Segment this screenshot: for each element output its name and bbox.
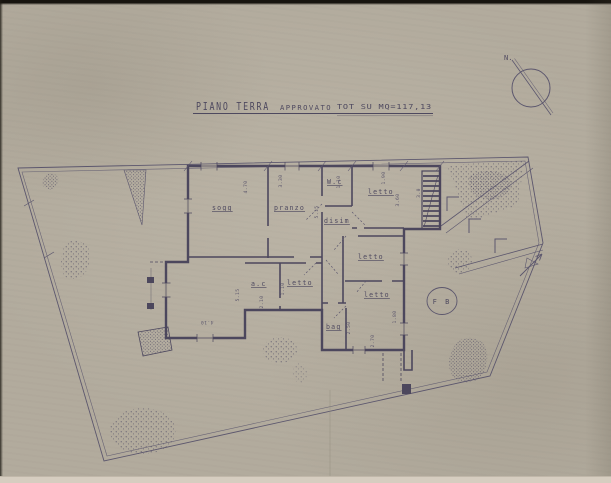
blueprint-scan-page: PIANO TERRA APPROVATO TOT SU MQ=117,13 N… bbox=[0, 0, 611, 483]
dim-text: 2.50 bbox=[346, 322, 352, 335]
north-label: N. bbox=[504, 54, 512, 62]
vegetation-patch bbox=[448, 249, 472, 273]
dim-text: 4.10 bbox=[201, 319, 214, 325]
scan-edge-left bbox=[0, 0, 3, 483]
scan-edge-top bbox=[0, 0, 611, 5]
fb-marker: F B bbox=[427, 288, 457, 315]
room-label-letto-est: letto bbox=[358, 253, 384, 261]
room-label-letto-nord: letto bbox=[368, 188, 394, 196]
dim-text: 3.30 bbox=[278, 175, 284, 188]
plan-title: PIANO TERRA bbox=[196, 101, 270, 113]
corner-mark bbox=[469, 219, 481, 233]
dim-text: 5.15 bbox=[235, 289, 241, 302]
porch-pillar bbox=[147, 303, 154, 309]
scan-edge-bottom bbox=[0, 476, 611, 483]
scan-edge-right bbox=[585, 0, 611, 483]
compass-circle bbox=[512, 69, 550, 107]
north-compass: N. bbox=[504, 54, 553, 115]
corner-mark bbox=[495, 239, 507, 253]
porch-pillar bbox=[147, 277, 154, 283]
vegetation-patch bbox=[293, 363, 307, 383]
fb-marker-label: F B bbox=[433, 298, 452, 306]
vegetation-patch bbox=[61, 241, 90, 279]
dim-text: 1.10 bbox=[336, 176, 342, 189]
room-label-disimpegno: disim bbox=[324, 217, 350, 225]
dim-text: 1.80 bbox=[392, 311, 398, 324]
title-block: PIANO TERRA APPROVATO TOT SU MQ=117,13 bbox=[193, 101, 433, 116]
compass-needle-2 bbox=[515, 59, 554, 114]
dim-text: 1.90 bbox=[381, 172, 387, 185]
dim-text: 3.60 bbox=[395, 194, 401, 207]
dim-text: 1.10 bbox=[280, 283, 286, 296]
dimension-labels: 4.70 3.30 5.15 1.10 1.90 3.60 3.0 4.10 5… bbox=[201, 172, 422, 348]
exterior-notch bbox=[404, 350, 412, 370]
stairs bbox=[422, 171, 440, 229]
plan-area-note: TOT SU MQ=117,13 bbox=[337, 103, 432, 111]
room-label-pranzo: pranzo bbox=[274, 204, 305, 212]
dashed-projection bbox=[383, 353, 401, 382]
dim-text: 3.0 bbox=[416, 188, 422, 198]
vegetation-patch bbox=[263, 337, 297, 363]
floorplan-drawing: PIANO TERRA APPROVATO TOT SU MQ=117,13 N… bbox=[0, 0, 611, 483]
vegetation-patch bbox=[110, 408, 176, 454]
room-label-soggiorno: sogg bbox=[212, 204, 233, 212]
rear-pillar bbox=[402, 384, 411, 394]
hatched-wedge bbox=[124, 170, 146, 225]
room-label-letto-sud: letto bbox=[364, 291, 390, 299]
vegetation-patch bbox=[42, 173, 58, 190]
plan-approval-note: APPROVATO bbox=[280, 104, 332, 112]
dim-text: 2.10 bbox=[259, 296, 265, 309]
room-labels: sogg pranzo W.c letto disim letto letto … bbox=[212, 178, 394, 331]
room-label-bagno: bag bbox=[326, 323, 342, 331]
corner-mark bbox=[447, 197, 459, 211]
vegetation-patch bbox=[449, 338, 487, 382]
dim-text: 2.70 bbox=[370, 335, 376, 348]
dim-text: 4.70 bbox=[243, 181, 249, 194]
room-label-letto-centro: letto bbox=[287, 279, 313, 287]
room-label-angolo-cottura: a.c bbox=[251, 280, 267, 288]
dim-text: 5.15 bbox=[314, 206, 320, 219]
